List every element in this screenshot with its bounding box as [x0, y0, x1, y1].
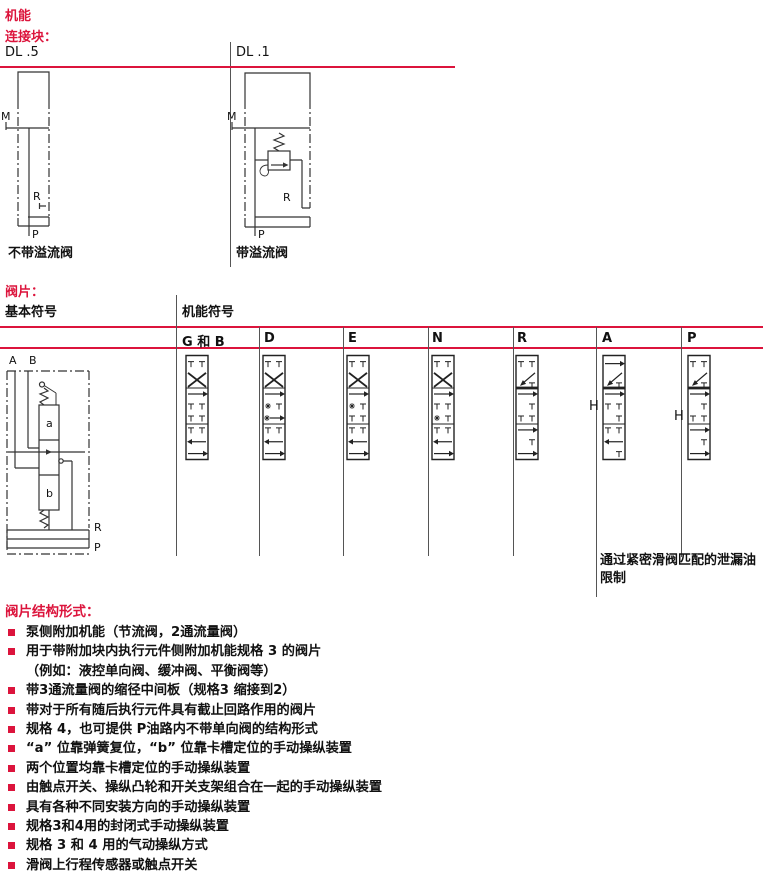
bullet-icon [8, 862, 15, 869]
valve-symbol-n [430, 354, 456, 462]
basic-symbol-header: 基本符号 [5, 301, 57, 320]
col-label-n: N [432, 331, 443, 346]
table-divider-3 [428, 327, 429, 556]
catalog-page: 机能 连接块： DL .5 DL .1 M R P [0, 0, 763, 874]
bullet-icon [8, 745, 15, 752]
basic-port-a: A [9, 354, 17, 367]
basic-port-p: P [94, 541, 101, 554]
valve-symbol-gb [184, 354, 210, 462]
dl1-port-p: P [258, 228, 265, 241]
leakage-note: 通过紧密滑阀匹配的泄漏油限制 [600, 552, 760, 588]
bullet-icon [8, 707, 15, 714]
position-b: b [46, 487, 53, 500]
bullet-icon [8, 804, 15, 811]
bullet-icon [8, 726, 15, 733]
col-label-r: R [517, 331, 527, 346]
list-item: 带3通流量阀的缩径中间板（规格3 缩接到2） [5, 681, 485, 700]
valve-symbol-d [261, 354, 287, 462]
col-label-a: A [602, 331, 612, 346]
dl1-caption: 带溢流阀 [236, 242, 288, 261]
bullet-icon [8, 823, 15, 830]
list-item: 泵侧附加机能（节流阀，2通流量阀） [5, 623, 485, 642]
bullet-icon [8, 648, 15, 655]
valve-symbol-r [514, 354, 540, 462]
connection-block-heading: 连接块： [5, 26, 57, 45]
dl5-code: DL .5 [5, 45, 39, 60]
position-a: a [46, 417, 53, 430]
h-annotation-a: H [589, 399, 599, 414]
col-label-d: D [264, 331, 275, 346]
valve-symbol-a [601, 354, 627, 462]
list-item: 规格 4，也可提供 P油路内不带单向阀的结构形式 [5, 720, 485, 739]
table-divider-1 [259, 327, 260, 556]
dl5-caption: 不带溢流阀 [8, 242, 73, 261]
table-divider-basic [176, 295, 177, 556]
flow-arrow [46, 449, 52, 454]
dl1-port-r: R [283, 191, 291, 204]
bullet-icon [8, 765, 15, 772]
list-item: 具有各种不同安装方向的手动操纵装置 [5, 798, 485, 817]
structure-list: 阀片结构形式： 泵侧附加机能（节流阀，2通流量阀） 用于带附加块内执行元件侧附加… [5, 600, 485, 874]
valve-section-heading: 阀片： [5, 281, 44, 300]
valve-symbol-p [686, 354, 712, 462]
basic-port-r: R [94, 521, 102, 534]
col-label-p: P [687, 331, 697, 346]
list-item: 由触点开关、操纵凸轮和开关支架组合在一起的手动操纵装置 [5, 778, 485, 797]
col-label-gb: G 和 B [182, 331, 225, 350]
bullet-icon [8, 842, 15, 849]
list-item: 两个位置均靠卡槽定位的手动操纵装置 [5, 759, 485, 778]
basic-symbol-schematic: A B a b R P [2, 350, 120, 562]
list-item: 用于带附加块内执行元件侧附加机能规格 3 的阀片 [5, 642, 485, 661]
bullet-icon [8, 629, 15, 636]
dl1-code: DL .1 [236, 45, 270, 60]
dl5-port-m: M [1, 110, 11, 123]
list-item: 带对于所有随后执行元件具有截止回路作用的阀片 [5, 701, 485, 720]
structure-list-heading: 阀片结构形式： [5, 600, 485, 620]
bullet-icon [8, 687, 15, 694]
list-item-continuation: （例如：液控单向阀、缓冲阀、平衡阀等） [5, 662, 485, 681]
basic-port-b: B [29, 354, 37, 367]
dl-header-rule [0, 66, 455, 68]
function-symbol-header: 机能符号 [182, 301, 234, 320]
dl1-schematic: M R P [225, 70, 460, 270]
h-annotation-p: H [674, 409, 684, 424]
list-item: 规格3和4用的封闭式手动操纵装置 [5, 817, 485, 836]
dl1-port-m: M [227, 110, 237, 123]
relief-valve-arrow [283, 162, 289, 167]
page-title: 机能 [5, 5, 31, 24]
dl5-schematic: M R P [0, 70, 120, 270]
list-item: “a” 位靠弹簧复位，“b” 位靠卡槽定位的手动操纵装置 [5, 739, 485, 758]
table-divider-2 [343, 327, 344, 556]
valve-symbol-e [345, 354, 371, 462]
bullet-icon [8, 784, 15, 791]
list-item: 规格 3 和 4 用的气动操纵方式 [5, 836, 485, 855]
table-rule-top [0, 326, 763, 328]
table-rule-bottom [0, 347, 763, 349]
table-divider-6 [681, 327, 682, 557]
list-item: 滑阀上行程传感器或触点开关 [5, 856, 485, 874]
dl5-port-p: P [32, 228, 39, 241]
col-label-e: E [348, 331, 357, 346]
table-divider-5 [596, 327, 597, 597]
dl5-port-r: R [33, 190, 41, 203]
